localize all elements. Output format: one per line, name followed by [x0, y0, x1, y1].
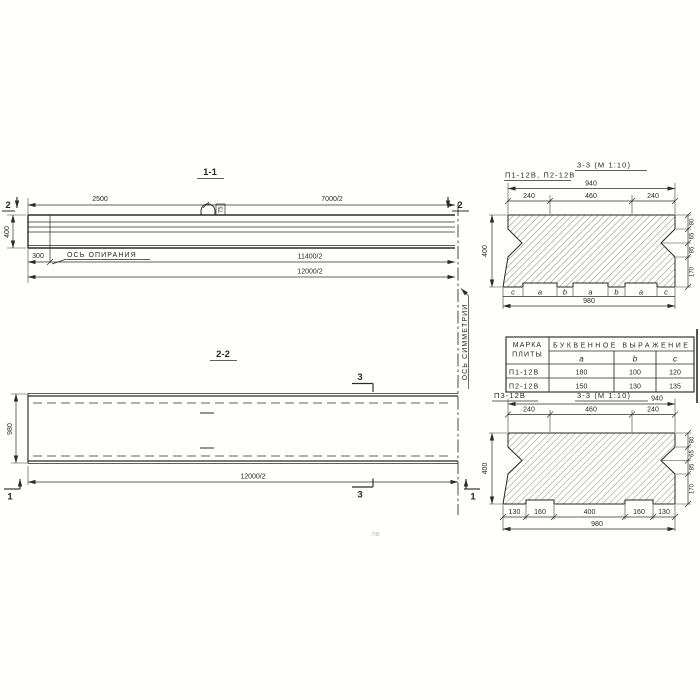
row-b: 100: [629, 370, 641, 377]
lifting-loop: 75: [201, 204, 225, 215]
dim-130-l: 130: [509, 509, 521, 516]
section-pi3-body: [503, 433, 675, 504]
slab-plan-body: [28, 394, 458, 464]
table-row: П2-12В 150 130 135: [509, 384, 681, 391]
cut-label: 1: [7, 492, 13, 503]
letter-a2: a: [588, 288, 592, 297]
cut-label: 3: [357, 490, 362, 501]
bearing-axis-label: ОСЬ ОПИРАНИЯ: [67, 252, 137, 259]
letter-a3: a: [639, 288, 643, 297]
row-c: 135: [669, 384, 681, 391]
symmetry-axis: ОСЬ СИММЕТРИИ: [458, 203, 469, 515]
marks-table: МАРКА ПЛИТЫ БУКВЕННОЕ ВЫРАЖЕНИЕ a b c П1…: [506, 337, 694, 392]
hidden-lines: [33, 403, 452, 456]
dim-65: 65: [690, 232, 696, 239]
dim-160-l: 160: [534, 509, 546, 516]
dim-980: 980: [7, 423, 14, 435]
row-mark: П1-12В: [509, 370, 539, 377]
dim-400-mid: 400: [584, 509, 596, 516]
dim-170: 170: [690, 266, 696, 277]
dim-240-r: 240: [647, 193, 659, 200]
cut-mark-3-top: 3: [352, 372, 373, 392]
section-pi1-label: П1-12В, П2-12В: [505, 171, 575, 180]
strand-lines: [28, 222, 455, 246]
row-mark: П2-12В: [509, 384, 539, 391]
dim-12000-2: 12000/2: [240, 474, 265, 481]
dim-400: 400: [482, 463, 489, 475]
dim-85: 85: [690, 463, 696, 470]
lifting-loop-arc: [201, 204, 215, 215]
dim-12000-2: 12000/2: [297, 269, 322, 276]
dim-940: 940: [651, 396, 663, 403]
dim-170: 170: [690, 483, 696, 494]
cut-mark-1-right: 1: [464, 479, 480, 503]
section-pi3-label: П3-12В: [494, 391, 526, 400]
row-a: 150: [576, 384, 588, 391]
plan-edges: [28, 394, 458, 464]
symmetry-axis-leader: [461, 289, 469, 297]
dim-2500: 2500: [92, 196, 108, 203]
section-pi3: П3-12В 3-3 (М 1:10) 940 240 460 240 130 …: [482, 391, 696, 531]
symmetry-axis-label: ОСЬ СИММЕТРИИ: [462, 304, 469, 381]
dim-85: 85: [690, 246, 696, 253]
dim-460: 460: [585, 407, 597, 414]
dim-7000-2: 7000/2: [321, 196, 343, 203]
dim-160-r: 160: [633, 509, 645, 516]
cut-label: 1: [470, 492, 476, 503]
table-header-expression: БУКВЕННОЕ ВЫРАЖЕНИЕ: [553, 343, 689, 350]
faint-scan-mark: пв: [372, 531, 380, 538]
dim-980: 980: [591, 521, 603, 528]
section-pi3-title: 3-3 (М 1:10): [577, 391, 631, 400]
letter-a1: a: [538, 288, 542, 297]
center-line-dashes: [200, 413, 214, 448]
table-col-b: b: [633, 355, 638, 364]
cut-mark-1-left: 1: [4, 479, 20, 503]
row-c: 120: [669, 370, 681, 377]
table-row: П1-12В 180 100 120: [509, 370, 681, 377]
dim-460: 460: [585, 193, 597, 200]
cut-mark-2-right: 2: [448, 197, 469, 211]
dim-980: 980: [583, 298, 595, 305]
dim-240-l: 240: [523, 193, 535, 200]
table-col-mark-1: МАРКА: [513, 342, 542, 349]
letter-b2: b: [614, 288, 618, 297]
letter-b1: b: [563, 288, 567, 297]
section-pi1-pi2: П1-12В, П2-12В 3-3 (М 1:10) 940 240 460 …: [482, 161, 696, 310]
precast-slab-drawing: 1-1 2500 7000/2 2 2 75: [0, 0, 700, 700]
dim-940: 940: [585, 181, 597, 188]
dim-300: 300: [32, 253, 44, 260]
dim-80: 80: [690, 218, 696, 225]
cut-line: [352, 384, 373, 393]
table-col-a: a: [579, 355, 584, 364]
lifting-loop-label: 75: [219, 206, 225, 213]
section-pi1-body: [503, 215, 675, 287]
dim-80: 80: [690, 436, 696, 443]
section-pi1-title: 3-3 (М 1:10): [577, 161, 631, 170]
letter-c1: c: [511, 288, 515, 297]
drawing-sheet: 1-1 2500 7000/2 2 2 75: [0, 0, 700, 700]
dim-240-r: 240: [647, 407, 659, 414]
table-col-mark-2: ПЛИТЫ: [512, 352, 543, 359]
dim-65: 65: [690, 450, 696, 457]
slab-elevation-body: [28, 215, 455, 248]
view-1-1: 1-1 2500 7000/2 2 2 75: [2, 167, 469, 283]
cut-line: [352, 479, 373, 488]
cut-label: 2: [5, 200, 10, 211]
view-2-2-title: 2-2: [216, 349, 230, 360]
table-col-c: c: [673, 355, 677, 364]
dim-240-l: 240: [523, 407, 535, 414]
cut-mark-2-left: 2: [2, 197, 17, 211]
view-2-2: 2-2 980 3 3 1 1: [4, 349, 480, 503]
row-a: 180: [576, 370, 588, 377]
plan-outer-lines: [28, 394, 458, 464]
dim-400: 400: [4, 226, 11, 238]
cut-label: 3: [357, 372, 362, 383]
view-1-1-title: 1-1: [203, 167, 217, 178]
row-b: 130: [629, 384, 641, 391]
dim-400: 400: [482, 245, 489, 257]
slab-edges: [28, 215, 455, 248]
extension-lines-top: [508, 399, 675, 433]
letter-c2: c: [664, 288, 668, 297]
dim-11400-2: 11400/2: [298, 254, 323, 261]
dim-130-r: 130: [658, 509, 670, 516]
